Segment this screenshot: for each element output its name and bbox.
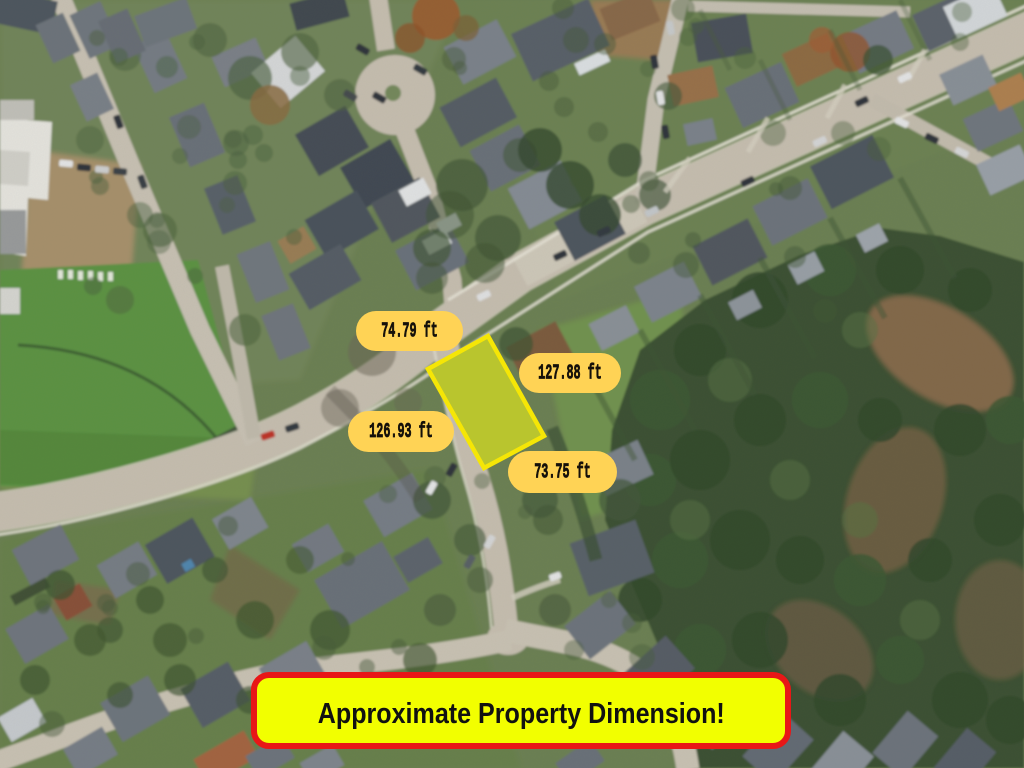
svg-text:74.79 ft: 74.79 ft — [381, 320, 438, 343]
svg-text:126.93 ft: 126.93 ft — [369, 421, 433, 444]
svg-text:73.75 ft: 73.75 ft — [534, 461, 591, 484]
svg-text:127.88 ft: 127.88 ft — [538, 362, 602, 385]
